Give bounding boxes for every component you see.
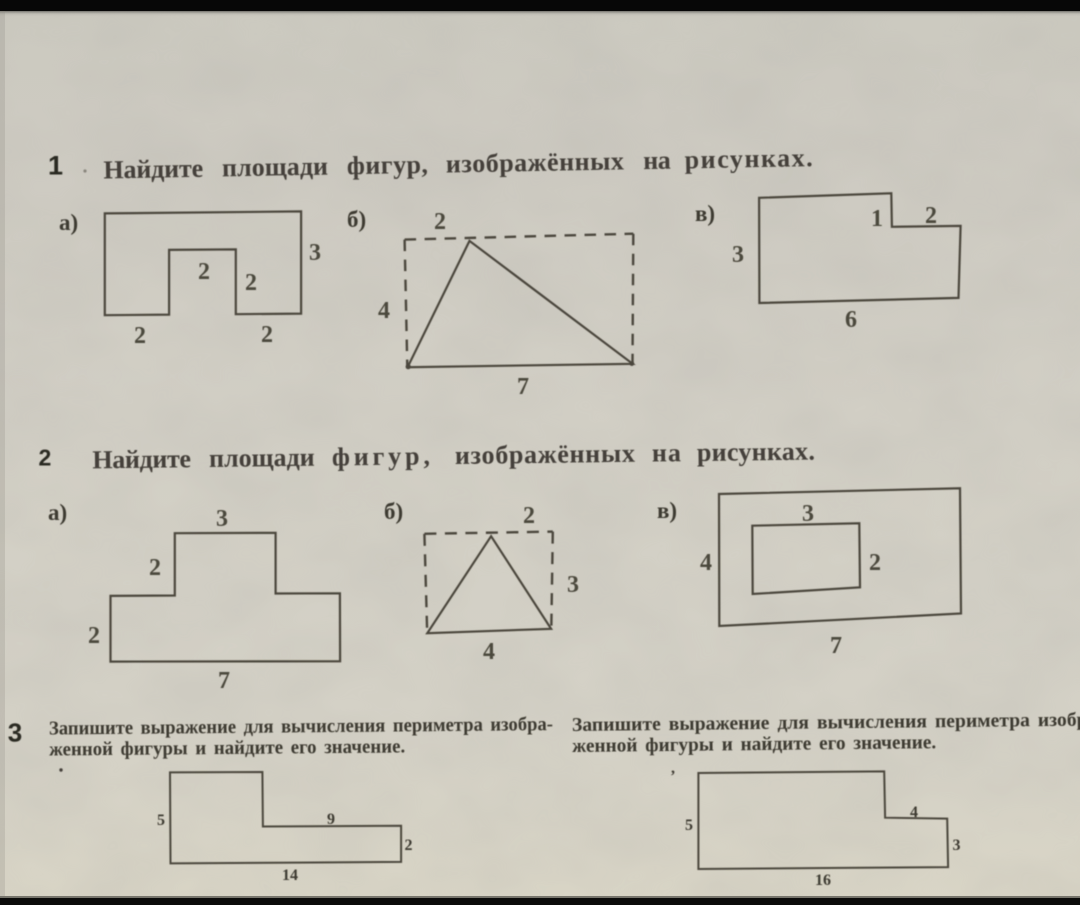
svg-text:женной фигуры и найдите его зн: женной фигуры и найдите его значение. <box>49 736 405 760</box>
svg-text:в): в) <box>695 201 715 226</box>
svg-text:фигур,: фигур, <box>347 150 428 180</box>
svg-text:3: 3 <box>567 572 579 598</box>
svg-text:7: 7 <box>517 374 529 400</box>
svg-text:2: 2 <box>261 322 273 348</box>
svg-text:4: 4 <box>910 804 918 821</box>
svg-text:2: 2 <box>434 209 446 235</box>
svg-text:16: 16 <box>815 872 831 889</box>
svg-text:1: 1 <box>48 151 63 181</box>
svg-text:2: 2 <box>198 259 210 285</box>
svg-text:,: , <box>671 760 675 777</box>
svg-text:7: 7 <box>830 633 842 659</box>
svg-text:4: 4 <box>378 298 390 324</box>
svg-text:2: 2 <box>869 550 881 576</box>
svg-text:2: 2 <box>925 203 937 229</box>
svg-text:площади: площади <box>222 152 329 183</box>
svg-text:6: 6 <box>845 307 857 333</box>
svg-text:5: 5 <box>157 812 165 829</box>
svg-text:3: 3 <box>802 501 814 527</box>
svg-text:2: 2 <box>134 323 146 349</box>
svg-text:14: 14 <box>282 867 298 884</box>
svg-text:3: 3 <box>216 506 228 532</box>
svg-text:2: 2 <box>88 623 100 649</box>
svg-text:на: на <box>652 438 681 467</box>
svg-text:изображённых: изображённых <box>455 439 635 470</box>
svg-text:4: 4 <box>483 639 495 665</box>
svg-text:в): в) <box>657 498 677 523</box>
svg-text:2: 2 <box>39 445 52 471</box>
svg-text:на: на <box>643 146 671 175</box>
svg-text:1: 1 <box>871 206 883 232</box>
svg-text:5: 5 <box>685 817 693 834</box>
svg-text:2: 2 <box>405 837 413 854</box>
svg-text:Запишите выражение для вычисле: Запишите выражение для вычисления периме… <box>49 714 553 739</box>
svg-text:3: 3 <box>8 718 22 748</box>
svg-text:2: 2 <box>149 555 161 581</box>
svg-text:а): а) <box>59 210 78 235</box>
svg-text:7: 7 <box>218 668 230 694</box>
svg-text:3: 3 <box>732 242 744 268</box>
svg-text:изображённых: изображённых <box>446 146 624 178</box>
svg-text:а): а) <box>48 500 67 525</box>
svg-text:рисунках.: рисунках. <box>697 437 815 467</box>
svg-text:Найдите: Найдите <box>92 444 191 474</box>
svg-text:3: 3 <box>309 240 321 266</box>
svg-text:4: 4 <box>700 550 712 576</box>
svg-text:площади: площади <box>209 443 315 473</box>
svg-text:б): б) <box>384 499 403 524</box>
svg-text:рисунках.: рисунках. <box>684 143 812 174</box>
svg-text:фигур,: фигур, <box>332 441 430 471</box>
svg-text:3: 3 <box>953 837 961 854</box>
svg-text:2: 2 <box>523 503 535 529</box>
svg-text:женной фигуры и найдите его зн: женной фигуры и найдите его значение. <box>572 732 936 757</box>
svg-text:б): б) <box>347 207 366 232</box>
svg-text:Найдите: Найдите <box>103 154 203 185</box>
svg-text:2: 2 <box>245 270 257 296</box>
svg-text:9: 9 <box>327 811 335 828</box>
